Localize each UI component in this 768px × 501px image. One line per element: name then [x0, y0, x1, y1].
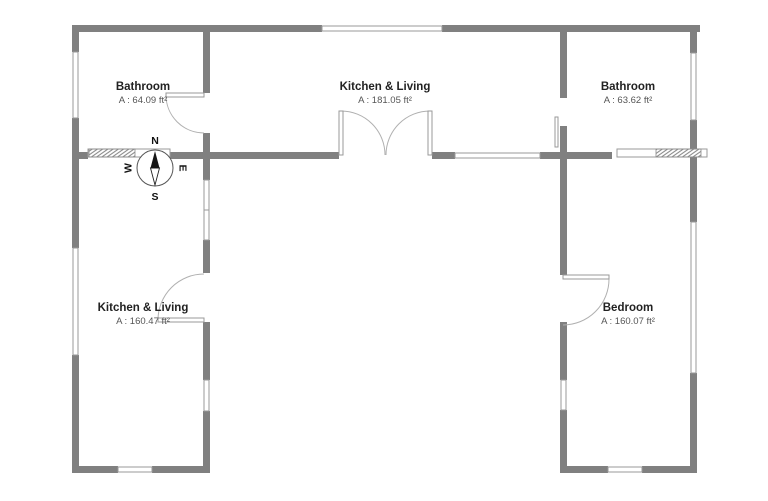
window [322, 26, 442, 31]
room-area-bathroom-right: A : 63.62 ft² [604, 95, 653, 106]
door-leaf [339, 111, 343, 155]
window [118, 467, 152, 472]
room-area-kitchen-living-bottom: A : 160.47 ft² [116, 316, 170, 327]
wall-segment [432, 152, 455, 159]
window [691, 222, 696, 373]
wall-segment [442, 25, 700, 32]
wall-segment [560, 466, 608, 473]
compass-s-label: S [151, 191, 158, 203]
window [455, 153, 540, 158]
door-swing-arc [166, 95, 204, 133]
room-name-bathroom-right: Bathroom [601, 81, 655, 93]
door-leaf [166, 93, 204, 97]
wall-segment [690, 373, 697, 473]
wall-segment [72, 466, 118, 473]
wall-segment [203, 240, 210, 273]
room-area-bedroom: A : 160.07 ft² [601, 316, 655, 327]
window [204, 380, 209, 411]
floor-plan: N S W E Bathroom A : 64.09 ft² Kitchen &… [0, 0, 768, 501]
window-sliding-panel [656, 149, 701, 157]
wall-segment [72, 355, 79, 473]
wall-segment [203, 411, 210, 473]
compass-rose-icon: N S W E [123, 135, 189, 203]
window [691, 53, 696, 120]
wall-segment [72, 118, 79, 248]
wall-segment [690, 120, 697, 222]
wall-segment [203, 322, 210, 380]
door-leaf [428, 111, 432, 155]
wall-segment [72, 25, 79, 52]
window-sliding-panel [89, 149, 135, 157]
window [608, 467, 642, 472]
doors [158, 93, 609, 325]
room-area-kitchen-living-top: A : 181.05 ft² [358, 95, 412, 106]
room-name-bathroom-left: Bathroom [116, 81, 170, 93]
room-name-kitchen-living-top: Kitchen & Living [340, 81, 431, 93]
door-swing-arc [341, 111, 385, 155]
wall-segment [152, 466, 210, 473]
room-name-kitchen-living-bottom: Kitchen & Living [98, 302, 189, 314]
room-labels: Bathroom A : 64.09 ft² Kitchen & Living … [98, 81, 656, 327]
wall-segment [567, 152, 612, 159]
door-leaf [563, 275, 609, 279]
wall-segment [72, 25, 322, 32]
wall-segment [642, 466, 697, 473]
wall-segment [203, 25, 210, 93]
door-swing-arc [386, 111, 430, 155]
floor-plan-canvas: N S W E Bathroom A : 64.09 ft² Kitchen &… [0, 0, 768, 501]
wall-segment [560, 25, 567, 98]
window [73, 248, 78, 355]
wall-segment [210, 152, 339, 159]
wall-segment [560, 410, 567, 473]
wall-segment [560, 126, 567, 275]
compass-e-label: E [177, 164, 189, 171]
compass-w-label: W [123, 163, 135, 173]
wall-segment [170, 152, 210, 159]
compass-n-label: N [151, 135, 159, 147]
room-name-bedroom: Bedroom [603, 302, 653, 314]
window [561, 380, 566, 410]
room-area-bathroom-left: A : 64.09 ft² [119, 95, 168, 106]
wall-segment [72, 152, 88, 159]
wall-segment [560, 322, 567, 380]
window [73, 52, 78, 118]
sliding-door-panel [555, 117, 558, 147]
wall-segment [690, 25, 697, 53]
